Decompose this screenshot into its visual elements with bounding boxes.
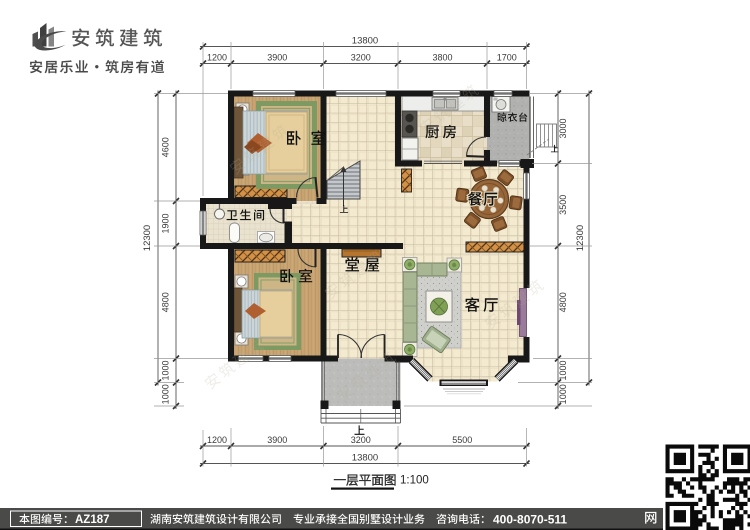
svg-text:3200: 3200 xyxy=(351,435,371,445)
svg-text:AZ187: AZ187 xyxy=(75,514,110,526)
svg-text:5500: 5500 xyxy=(452,435,472,445)
svg-text:12300: 12300 xyxy=(142,225,153,251)
svg-text:4600: 4600 xyxy=(161,137,171,157)
svg-text:1200: 1200 xyxy=(207,53,227,63)
svg-text:3800: 3800 xyxy=(432,53,452,63)
svg-text:400-8070-511: 400-8070-511 xyxy=(493,513,567,527)
svg-text:1000: 1000 xyxy=(558,384,568,404)
svg-text:3900: 3900 xyxy=(267,435,287,445)
svg-text:4800: 4800 xyxy=(558,292,568,312)
svg-text:1200: 1200 xyxy=(207,435,227,445)
svg-text:3900: 3900 xyxy=(267,53,287,63)
svg-text:1000: 1000 xyxy=(161,360,171,380)
svg-text:3000: 3000 xyxy=(558,118,568,138)
svg-text:12300: 12300 xyxy=(575,225,586,251)
svg-text:3200: 3200 xyxy=(351,53,371,63)
svg-text:1000: 1000 xyxy=(558,360,568,380)
svg-text:13800: 13800 xyxy=(352,36,378,47)
svg-text:4800: 4800 xyxy=(161,292,171,312)
svg-text:13800: 13800 xyxy=(352,453,378,464)
svg-text:1000: 1000 xyxy=(161,384,171,404)
svg-text:1700: 1700 xyxy=(497,53,517,63)
svg-text:3500: 3500 xyxy=(558,195,568,215)
svg-text:1:100: 1:100 xyxy=(400,475,429,487)
svg-text:1900: 1900 xyxy=(161,213,171,233)
